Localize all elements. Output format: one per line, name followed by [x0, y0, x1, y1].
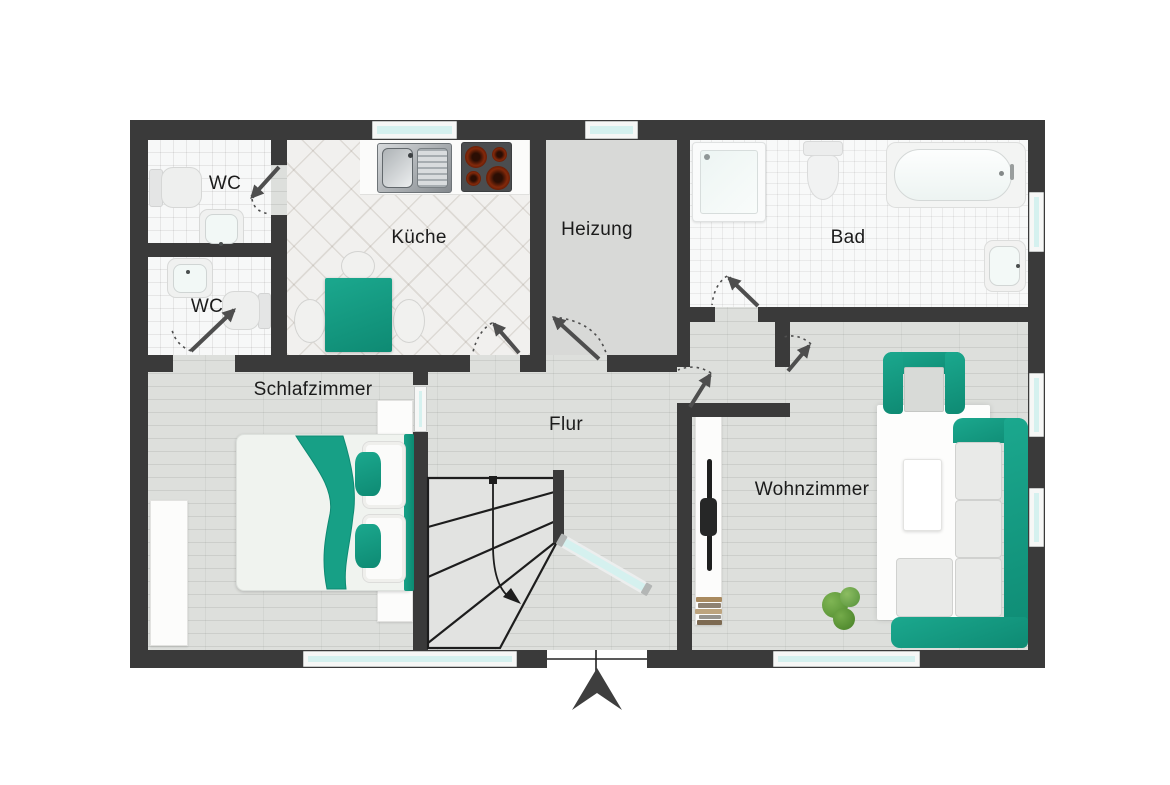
room-label-wc1: WC	[209, 173, 241, 195]
bed-duvet	[296, 436, 354, 589]
floor-plan: WC WC Küche Heizung Bad Schlafzimmer Flu…	[0, 0, 1170, 785]
room-label-flur: Flur	[549, 414, 583, 436]
stair-wall	[553, 470, 564, 543]
entrance-arrow-icon	[572, 668, 622, 710]
room-label-wohnzimmer: Wohnzimmer	[755, 479, 870, 501]
room-label-heizung: Heizung	[561, 219, 633, 241]
room-label-kueche: Küche	[391, 227, 446, 249]
stairs	[428, 470, 564, 648]
room-label-wc2: WC	[191, 296, 223, 318]
room-label-schlafzimmer: Schlafzimmer	[254, 379, 373, 401]
entrance-marker	[547, 650, 647, 710]
room-label-bad: Bad	[831, 227, 866, 249]
door-icon	[172, 167, 811, 407]
front-door-icon	[556, 533, 653, 596]
